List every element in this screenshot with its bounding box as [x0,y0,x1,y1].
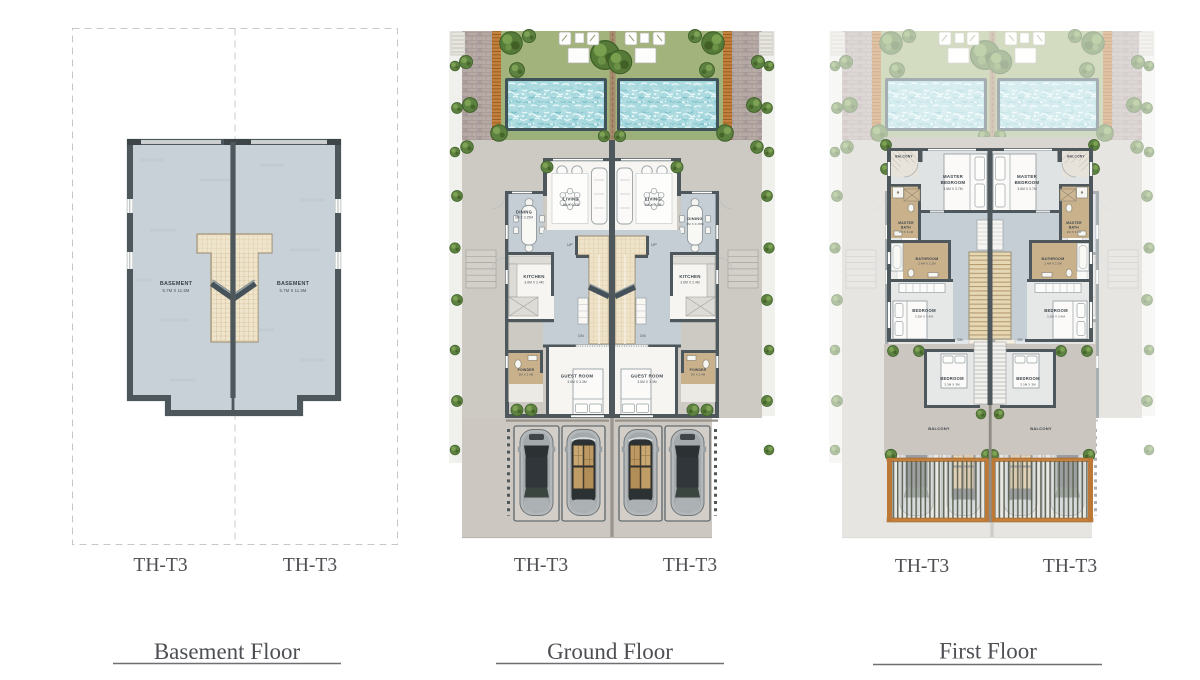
svg-text:UP: UP [567,242,573,247]
svg-text:TH-T3: TH-T3 [1043,556,1097,577]
svg-text:BEDROOM: BEDROOM [1044,308,1068,313]
svg-text:TH-T3: TH-T3 [133,555,187,576]
svg-text:5.7M X 11.5M: 5.7M X 11.5M [163,288,190,293]
svg-text:DINING: DINING [516,210,532,215]
svg-text:Ground Floor: Ground Floor [547,639,673,664]
svg-text:4M X 3.7M: 4M X 3.7M [645,203,662,207]
svg-text:3.6M X 2.4M: 3.6M X 2.4M [524,281,543,285]
svg-text:BASEMENT: BASEMENT [277,281,310,287]
svg-text:KITCHEN: KITCHEN [523,274,544,279]
svg-text:First Floor: First Floor [939,639,1037,664]
svg-text:BEDROOM: BEDROOM [941,180,966,185]
svg-text:2M X 2.4M: 2M X 2.4M [691,373,706,377]
svg-text:BATH: BATH [901,226,911,230]
svg-text:KITCHEN: KITCHEN [679,274,700,279]
svg-text:MASTER: MASTER [943,174,964,179]
svg-text:BEDROOM: BEDROOM [1015,180,1040,185]
svg-text:Basement Floor: Basement Floor [154,639,301,664]
svg-text:MASTER: MASTER [1066,221,1082,225]
svg-text:GUEST ROOM: GUEST ROOM [631,374,664,379]
svg-text:3.6M X 2.4M: 3.6M X 2.4M [680,281,699,285]
svg-text:BALCONY: BALCONY [1030,426,1052,431]
svg-text:MASTER: MASTER [898,221,914,225]
svg-text:3.6M X 3.3M: 3.6M X 3.3M [637,380,656,384]
svg-text:LIVING: LIVING [645,197,661,202]
svg-text:3.6M X 3.3M: 3.6M X 3.3M [567,380,586,384]
svg-text:BATH: BATH [1069,226,1079,230]
svg-text:LIVING: LIVING [563,197,579,202]
svg-text:3M X 3.25M: 3M X 3.25M [686,222,704,226]
svg-text:2M X 3.1M: 2M X 3.1M [1067,230,1082,234]
svg-text:2M X 3.1M: 2M X 3.1M [899,230,914,234]
svg-text:DINING: DINING [687,216,703,221]
svg-text:TH-T3: TH-T3 [283,555,337,576]
svg-text:DN: DN [640,334,646,338]
svg-text:2M X 2.4M: 2M X 2.4M [519,373,534,377]
svg-text:GUEST ROOM: GUEST ROOM [561,374,594,379]
svg-text:UP: UP [651,242,657,247]
svg-text:DN: DN [578,334,584,338]
svg-text:BEDROOM: BEDROOM [912,308,936,313]
svg-text:3M X 3.25M: 3M X 3.25M [515,216,533,220]
svg-text:3.6M X 3.7M: 3.6M X 3.7M [943,187,962,191]
svg-text:DN: DN [957,338,963,342]
svg-text:TH-T3: TH-T3 [895,556,949,577]
svg-text:BALCONY: BALCONY [1067,155,1085,159]
svg-text:BATHROOM: BATHROOM [916,257,939,261]
svg-text:POWDER: POWDER [690,368,707,372]
svg-text:MASTER: MASTER [1017,174,1038,179]
svg-text:BATHROOM: BATHROOM [1042,257,1065,261]
svg-text:3.2M X 3.4M: 3.2M X 3.4M [1047,315,1066,319]
svg-text:3.2M X 3.4M: 3.2M X 3.4M [915,315,934,319]
svg-text:2.4M X 2.2M: 2.4M X 2.2M [1044,262,1062,266]
svg-text:POWDER: POWDER [518,368,535,372]
svg-text:TH-T3: TH-T3 [514,555,568,576]
svg-text:BEDROOM: BEDROOM [1016,376,1040,381]
svg-text:2.4M X 2.2M: 2.4M X 2.2M [918,262,936,266]
svg-text:TH-T3: TH-T3 [663,555,717,576]
svg-text:BEDROOM: BEDROOM [940,376,964,381]
svg-text:BALCONY: BALCONY [928,426,950,431]
svg-text:3.3M X 3M: 3.3M X 3M [1020,383,1036,387]
svg-text:5.7M X 11.5M: 5.7M X 11.5M [280,288,307,293]
svg-text:BASEMENT: BASEMENT [160,281,193,287]
svg-text:4M X 3.7M: 4M X 3.7M [563,203,580,207]
svg-text:3.6M X 3.7M: 3.6M X 3.7M [1017,187,1036,191]
svg-text:3.3M X 3M: 3.3M X 3M [944,383,960,387]
svg-text:DN: DN [1017,338,1023,342]
svg-text:BALCONY: BALCONY [895,155,913,159]
